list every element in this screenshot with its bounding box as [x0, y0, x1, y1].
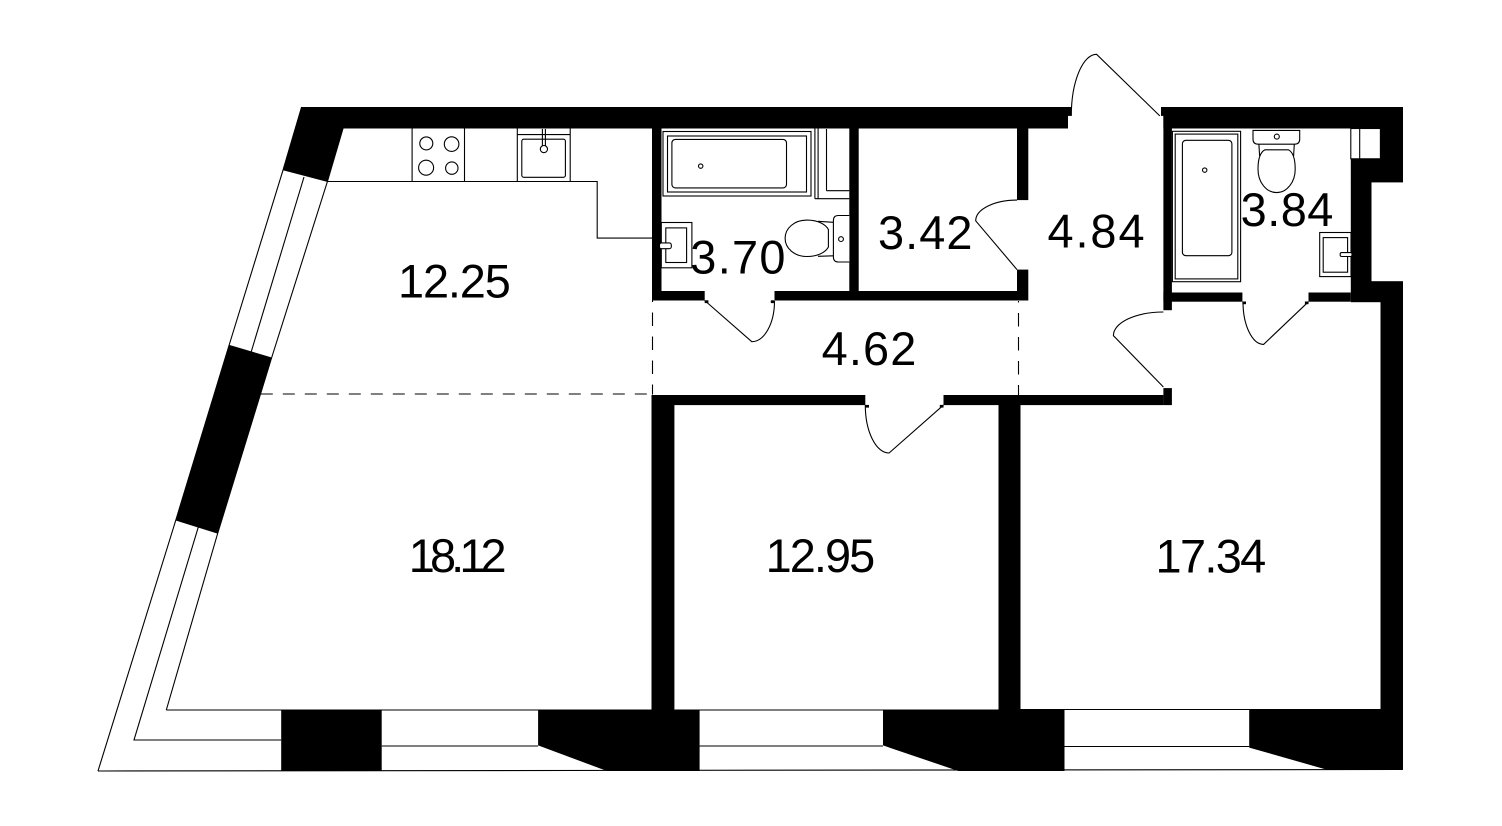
svg-text:12.25: 12.25: [398, 255, 511, 307]
svg-text:18.12: 18.12: [409, 530, 507, 582]
svg-text:3.84: 3.84: [1241, 184, 1334, 236]
svg-text:3.42: 3.42: [878, 207, 973, 259]
svg-text:3.70: 3.70: [690, 231, 785, 283]
svg-text:4.62: 4.62: [822, 323, 917, 375]
svg-text:4.84: 4.84: [1047, 206, 1144, 258]
svg-text:17.34: 17.34: [1156, 530, 1267, 582]
svg-text:12.95: 12.95: [766, 530, 876, 582]
